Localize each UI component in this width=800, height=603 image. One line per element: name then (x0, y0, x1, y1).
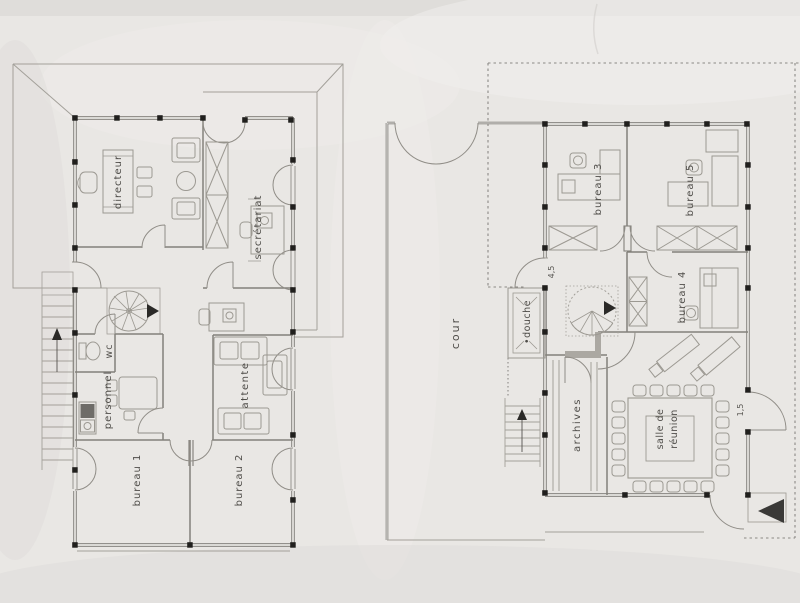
dimension-label-left-door: 4,5 (547, 266, 556, 279)
room-label-douche: •douche (522, 300, 533, 344)
room-label-personnel: personnel (103, 371, 114, 430)
room-label-secretariat: secrétariat (252, 195, 264, 260)
room-label-salle-de-reunion-line1: salle de (655, 409, 666, 450)
room-label-directeur: directeur (113, 155, 124, 209)
scanned-page: directeur secrétariat wc personnel atten… (0, 0, 800, 603)
room-label-bureau-1: bureau 1 (132, 454, 143, 507)
dimension-label-right-door: 1,5 (736, 404, 745, 417)
room-label-salle-de-reunion-line2: réunion (669, 409, 680, 449)
room-label-attente: attente (240, 361, 251, 408)
room-label-wc: wc (104, 344, 115, 359)
room-label-bureau-2: bureau 2 (234, 454, 245, 507)
floorplan-scan: directeur secrétariat wc personnel atten… (0, 0, 800, 603)
room-label-bureau-4: bureau 4 (677, 271, 688, 324)
room-label-bureau-5: bureau 5 (685, 164, 696, 217)
room-label-archives: archives (572, 398, 583, 452)
room-label-cour: cour (449, 317, 462, 349)
room-label-bureau-3: bureau 3 (593, 163, 604, 216)
